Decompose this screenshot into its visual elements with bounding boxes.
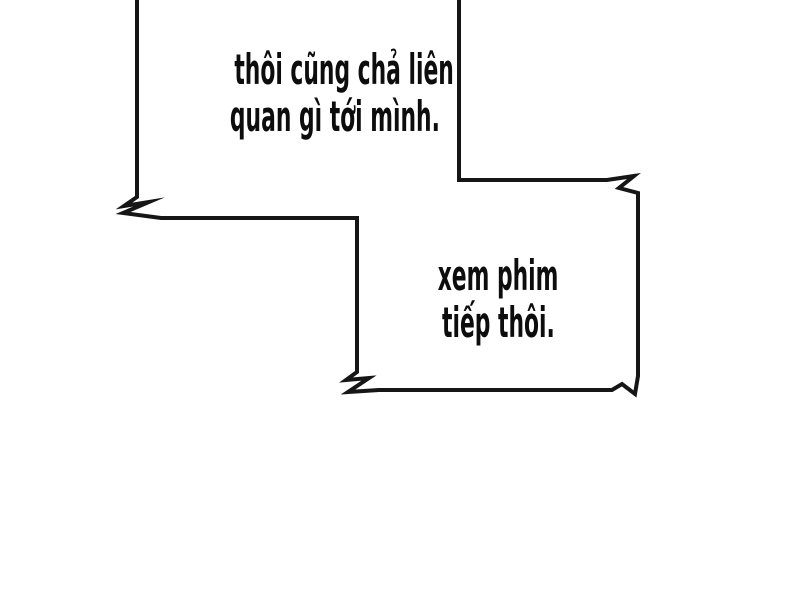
speech-bubble-1: thôi cũng chả liên quan gì tới mình. [133,46,457,140]
speech-bubble-2-line-1: xem phim [357,252,639,299]
speech-text: tiếp thôi. [442,299,555,346]
speech-text: thôi cũng chả liên [234,46,454,93]
comic-panel: thôi cũng chả liên quan gì tới mình. xem… [0,0,800,600]
speech-text: xem phim [438,252,559,299]
speech-text: quan gì tới mình. [230,93,440,140]
speech-bubble-1-line-1: thôi cũng chả liên [133,46,457,93]
speech-bubble-2: xem phim tiếp thôi. [357,252,639,346]
speech-bubble-1-line-2: quan gì tới mình. [133,93,457,140]
speech-bubble-2-line-2: tiếp thôi. [357,299,639,346]
